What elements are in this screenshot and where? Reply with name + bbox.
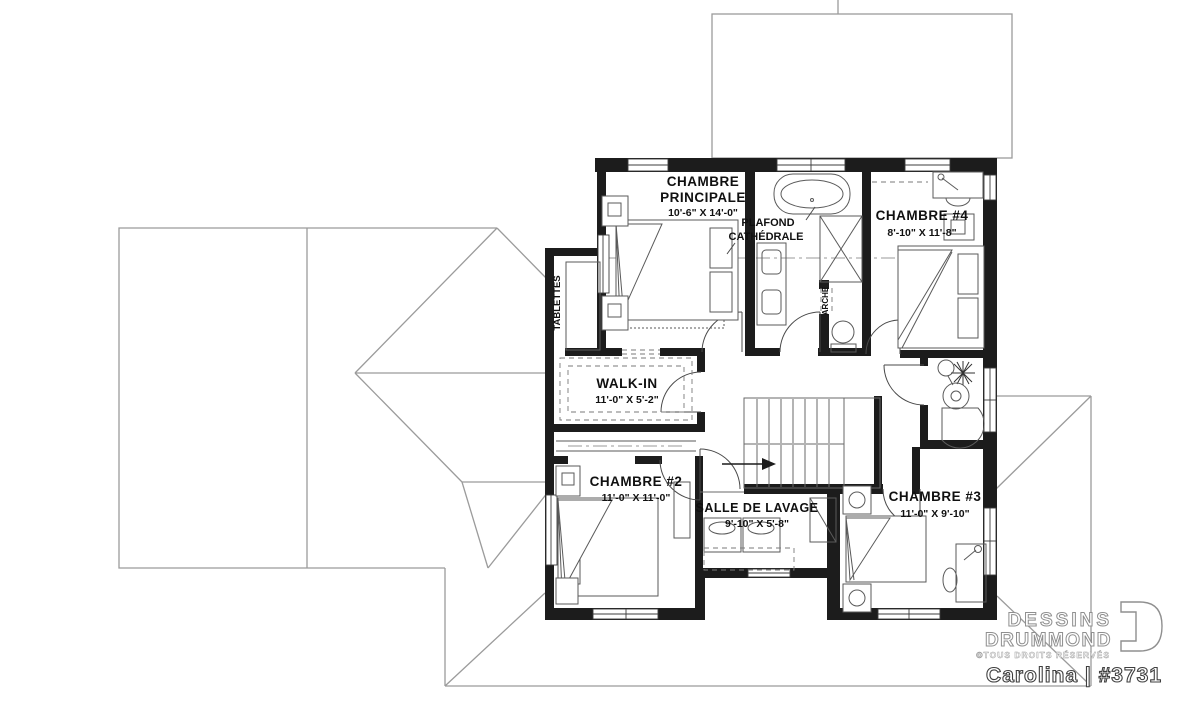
room-dims-laundry: 9'-10" X 5'-8" — [725, 518, 789, 530]
room-dims-bedroom2: 11'-0" X 11'-0" — [602, 492, 671, 504]
brand-copyright: ©TOUS DROITS RÉSERVÉS — [976, 650, 1110, 660]
wc-sink — [938, 360, 969, 409]
floorplan-canvas: CHAMBRE PRINCIPALE 10'-6" X 14'-0" CHAMB… — [0, 0, 1200, 711]
bedroom4-desk — [933, 172, 983, 206]
stairs-direction-arrow — [722, 458, 776, 470]
room-dims-walkin: 11'-0" X 5'-2" — [595, 394, 658, 406]
window — [546, 495, 557, 565]
bedroom3-desk — [943, 544, 986, 602]
window — [878, 609, 940, 619]
door-walkin — [661, 372, 701, 412]
toilet — [831, 321, 856, 352]
door-laundry — [700, 449, 740, 489]
note-shelves: TABLETTES — [552, 275, 563, 330]
master-bed — [616, 220, 738, 328]
window — [984, 368, 996, 432]
room-label-laundry: SALLE DE LAVAGE — [695, 501, 818, 515]
room-dims-bedroom4: 8'-10" X 11'-8" — [887, 227, 956, 239]
master-nightstand — [602, 196, 628, 226]
brand-name-line1: DESSINS — [1008, 610, 1112, 631]
roof-upper-rect — [712, 14, 1012, 158]
room-label-bedroom2: CHAMBRE #2 — [590, 474, 683, 489]
room-dims-master: 10'-6" X 14'-0" — [668, 207, 738, 219]
door-bedroom4 — [866, 320, 900, 354]
bedroom2-table — [556, 578, 578, 604]
bedroom2-closet — [556, 441, 696, 451]
bedroom2-nightstand — [556, 466, 580, 496]
wc-plant — [951, 361, 975, 385]
note-ceiling-1: PLAFOND — [741, 217, 794, 229]
master-nightstand — [602, 296, 628, 330]
bedroom4-bed — [898, 246, 984, 348]
bedroom3-nightstand — [843, 584, 871, 612]
staircase — [700, 398, 880, 492]
window — [777, 159, 845, 171]
room-label-master-1: CHAMBRE — [667, 174, 740, 189]
window — [905, 159, 950, 171]
window — [984, 175, 996, 200]
room-label-master-2: PRINCIPALE — [660, 190, 746, 205]
window — [628, 159, 668, 171]
door-wc — [884, 365, 924, 405]
room-label-bedroom3: CHAMBRE #3 — [889, 489, 982, 504]
shelving-unit — [566, 262, 600, 350]
vanity-double-sink — [757, 243, 786, 325]
room-label-walkin: WALK-IN — [596, 376, 657, 391]
shower — [820, 216, 862, 282]
drummond-d-logo-icon — [1121, 602, 1162, 651]
branding-block: DESSINS DRUMMOND ©TOUS DROITS RÉSERVÉS C… — [976, 602, 1162, 687]
room-dims-bedroom3: 11'-0" X 9'-10" — [900, 508, 969, 520]
bedroom3-nightstand — [843, 486, 871, 514]
brand-name-line2: DRUMMOND — [985, 630, 1112, 651]
floorplan-page: CHAMBRE PRINCIPALE 10'-6" X 14'-0" CHAMB… — [0, 0, 1200, 711]
window — [593, 609, 658, 619]
bathtub — [774, 174, 850, 214]
bedroom3-bed — [846, 516, 926, 582]
bedroom2-dresser — [674, 482, 690, 538]
note-ceiling-2: CATHÉDRALE — [729, 230, 804, 243]
room-label-bedroom4: CHAMBRE #4 — [876, 208, 969, 223]
plan-model-number: Carolina | #3731 — [986, 664, 1162, 687]
note-arch: ARCHE — [821, 286, 830, 315]
